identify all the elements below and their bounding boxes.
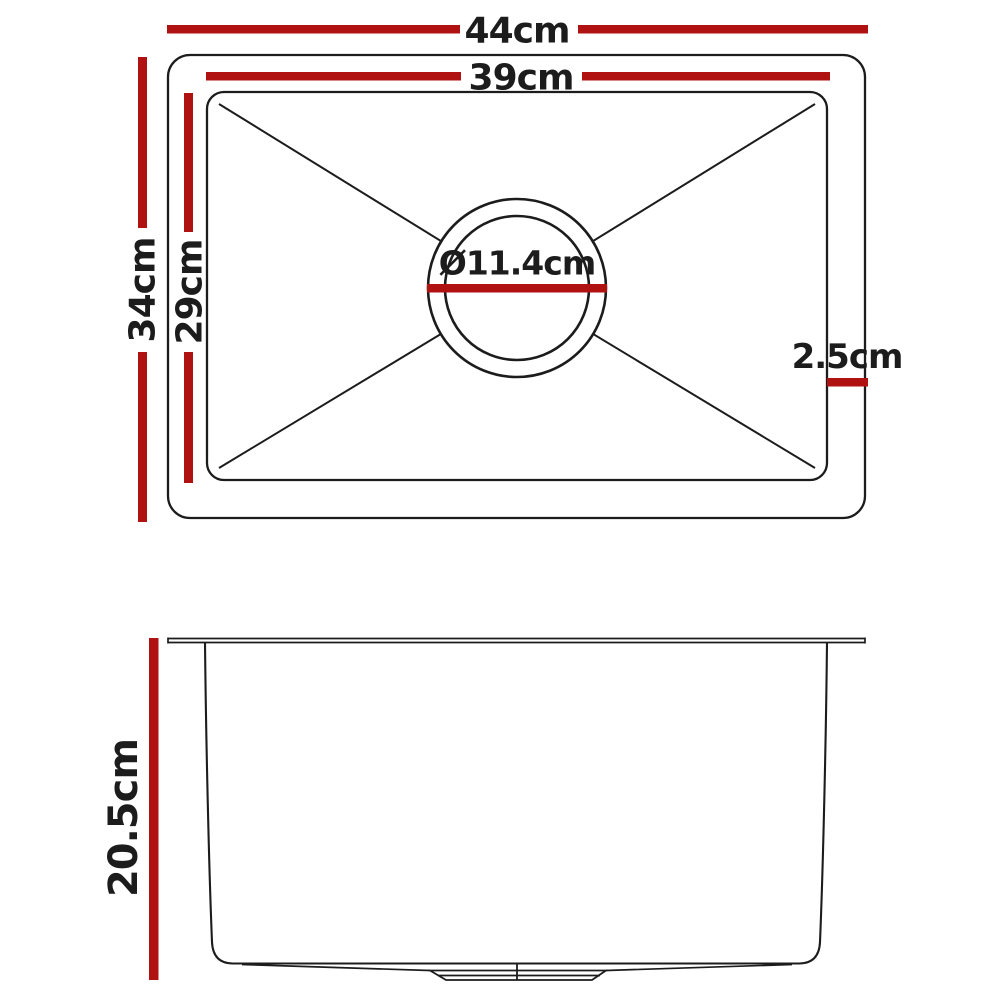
outer-height-dimension: 34cm xyxy=(123,57,164,522)
side-view-drain xyxy=(430,964,606,981)
rim-width-label: 2.5cm xyxy=(792,337,903,377)
side-view: 20.5cm xyxy=(101,638,865,981)
outer-width-dimension: 44cm xyxy=(167,11,868,52)
outer-height-bar-top xyxy=(138,57,147,228)
rim-width-dimension: 2.5cm xyxy=(792,337,903,387)
outer-width-bar-right xyxy=(578,25,868,34)
drain-diameter-label: Ø11.4cm xyxy=(439,244,595,283)
depth-bar xyxy=(149,638,159,980)
sink-dimension-drawing: Ø11.4cm 44cm 39cm 34cm 29cm 2.5cm xyxy=(0,0,1000,1000)
top-view: Ø11.4cm 44cm 39cm 34cm 29cm 2.5cm xyxy=(123,11,903,522)
drain-diameter-bar xyxy=(427,284,607,293)
inner-width-bar-right xyxy=(582,72,830,81)
inner-height-bar-bottom xyxy=(184,352,193,483)
depth-dimension: 20.5cm xyxy=(101,638,159,980)
outer-width-label: 44cm xyxy=(465,11,570,52)
inner-width-bar-left xyxy=(206,72,461,81)
side-view-bowl-profile xyxy=(205,643,827,964)
outer-height-label: 34cm xyxy=(123,238,164,343)
inner-height-bar-top xyxy=(184,93,193,232)
outer-height-bar-bottom xyxy=(138,352,147,522)
product-dimension-diagram: Ø11.4cm 44cm 39cm 34cm 29cm 2.5cm xyxy=(0,0,1000,1000)
inner-height-dimension: 29cm xyxy=(170,93,211,483)
inner-height-label: 29cm xyxy=(170,240,211,345)
rim-width-bar xyxy=(827,378,868,387)
inner-width-label: 39cm xyxy=(469,58,574,99)
side-view-rim xyxy=(168,638,865,644)
outer-width-bar-left xyxy=(167,25,460,34)
depth-label: 20.5cm xyxy=(101,739,147,897)
